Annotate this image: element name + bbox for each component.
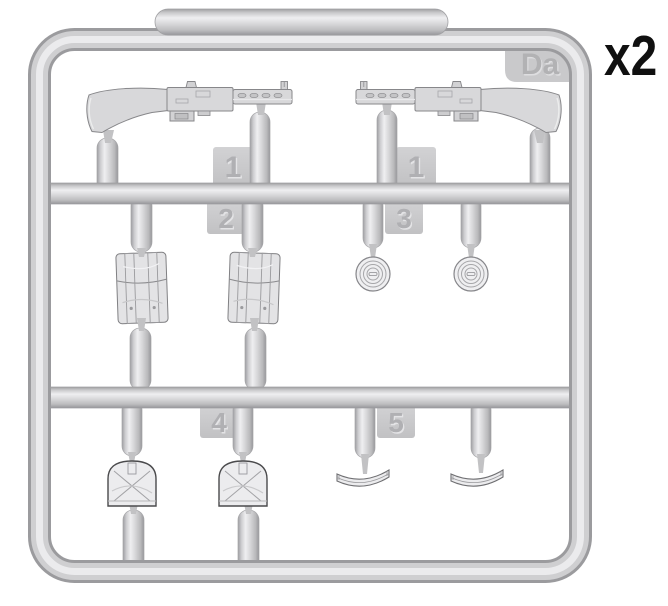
ammo-pouch-left — [116, 252, 168, 324]
pin — [467, 244, 475, 258]
sprue-diagram: 1 1 1 1 2 2 3 3 4 4 5 5 — [0, 0, 668, 606]
tag-1a-label: 1 — [225, 151, 242, 184]
curved-box-magazine-right — [451, 470, 503, 486]
quantity-label: x2 — [604, 24, 657, 88]
pin — [477, 454, 485, 473]
tag-4-label: 4 — [211, 407, 227, 438]
sprue-top-runner — [155, 9, 448, 35]
tag-1b-label: 1 — [408, 151, 425, 184]
pin — [369, 244, 377, 258]
magazine-pouch-right — [219, 461, 267, 506]
sprue-letter-label: Da — [521, 48, 560, 81]
drum-magazine-right — [454, 257, 488, 291]
drum-magazine-left — [356, 257, 390, 291]
sprue-posts — [97, 110, 550, 570]
pin — [361, 454, 369, 474]
ammo-pouch-right — [228, 252, 280, 324]
tag-3-label: 3 — [396, 203, 412, 234]
sprue-letter: Da Da — [521, 48, 561, 82]
sprue-svg: 1 1 1 1 2 2 3 3 4 4 5 5 — [0, 0, 668, 606]
tag-5-label: 5 — [388, 407, 404, 438]
tag-2-label: 2 — [218, 203, 234, 234]
magazine-pouch-left — [108, 461, 156, 506]
